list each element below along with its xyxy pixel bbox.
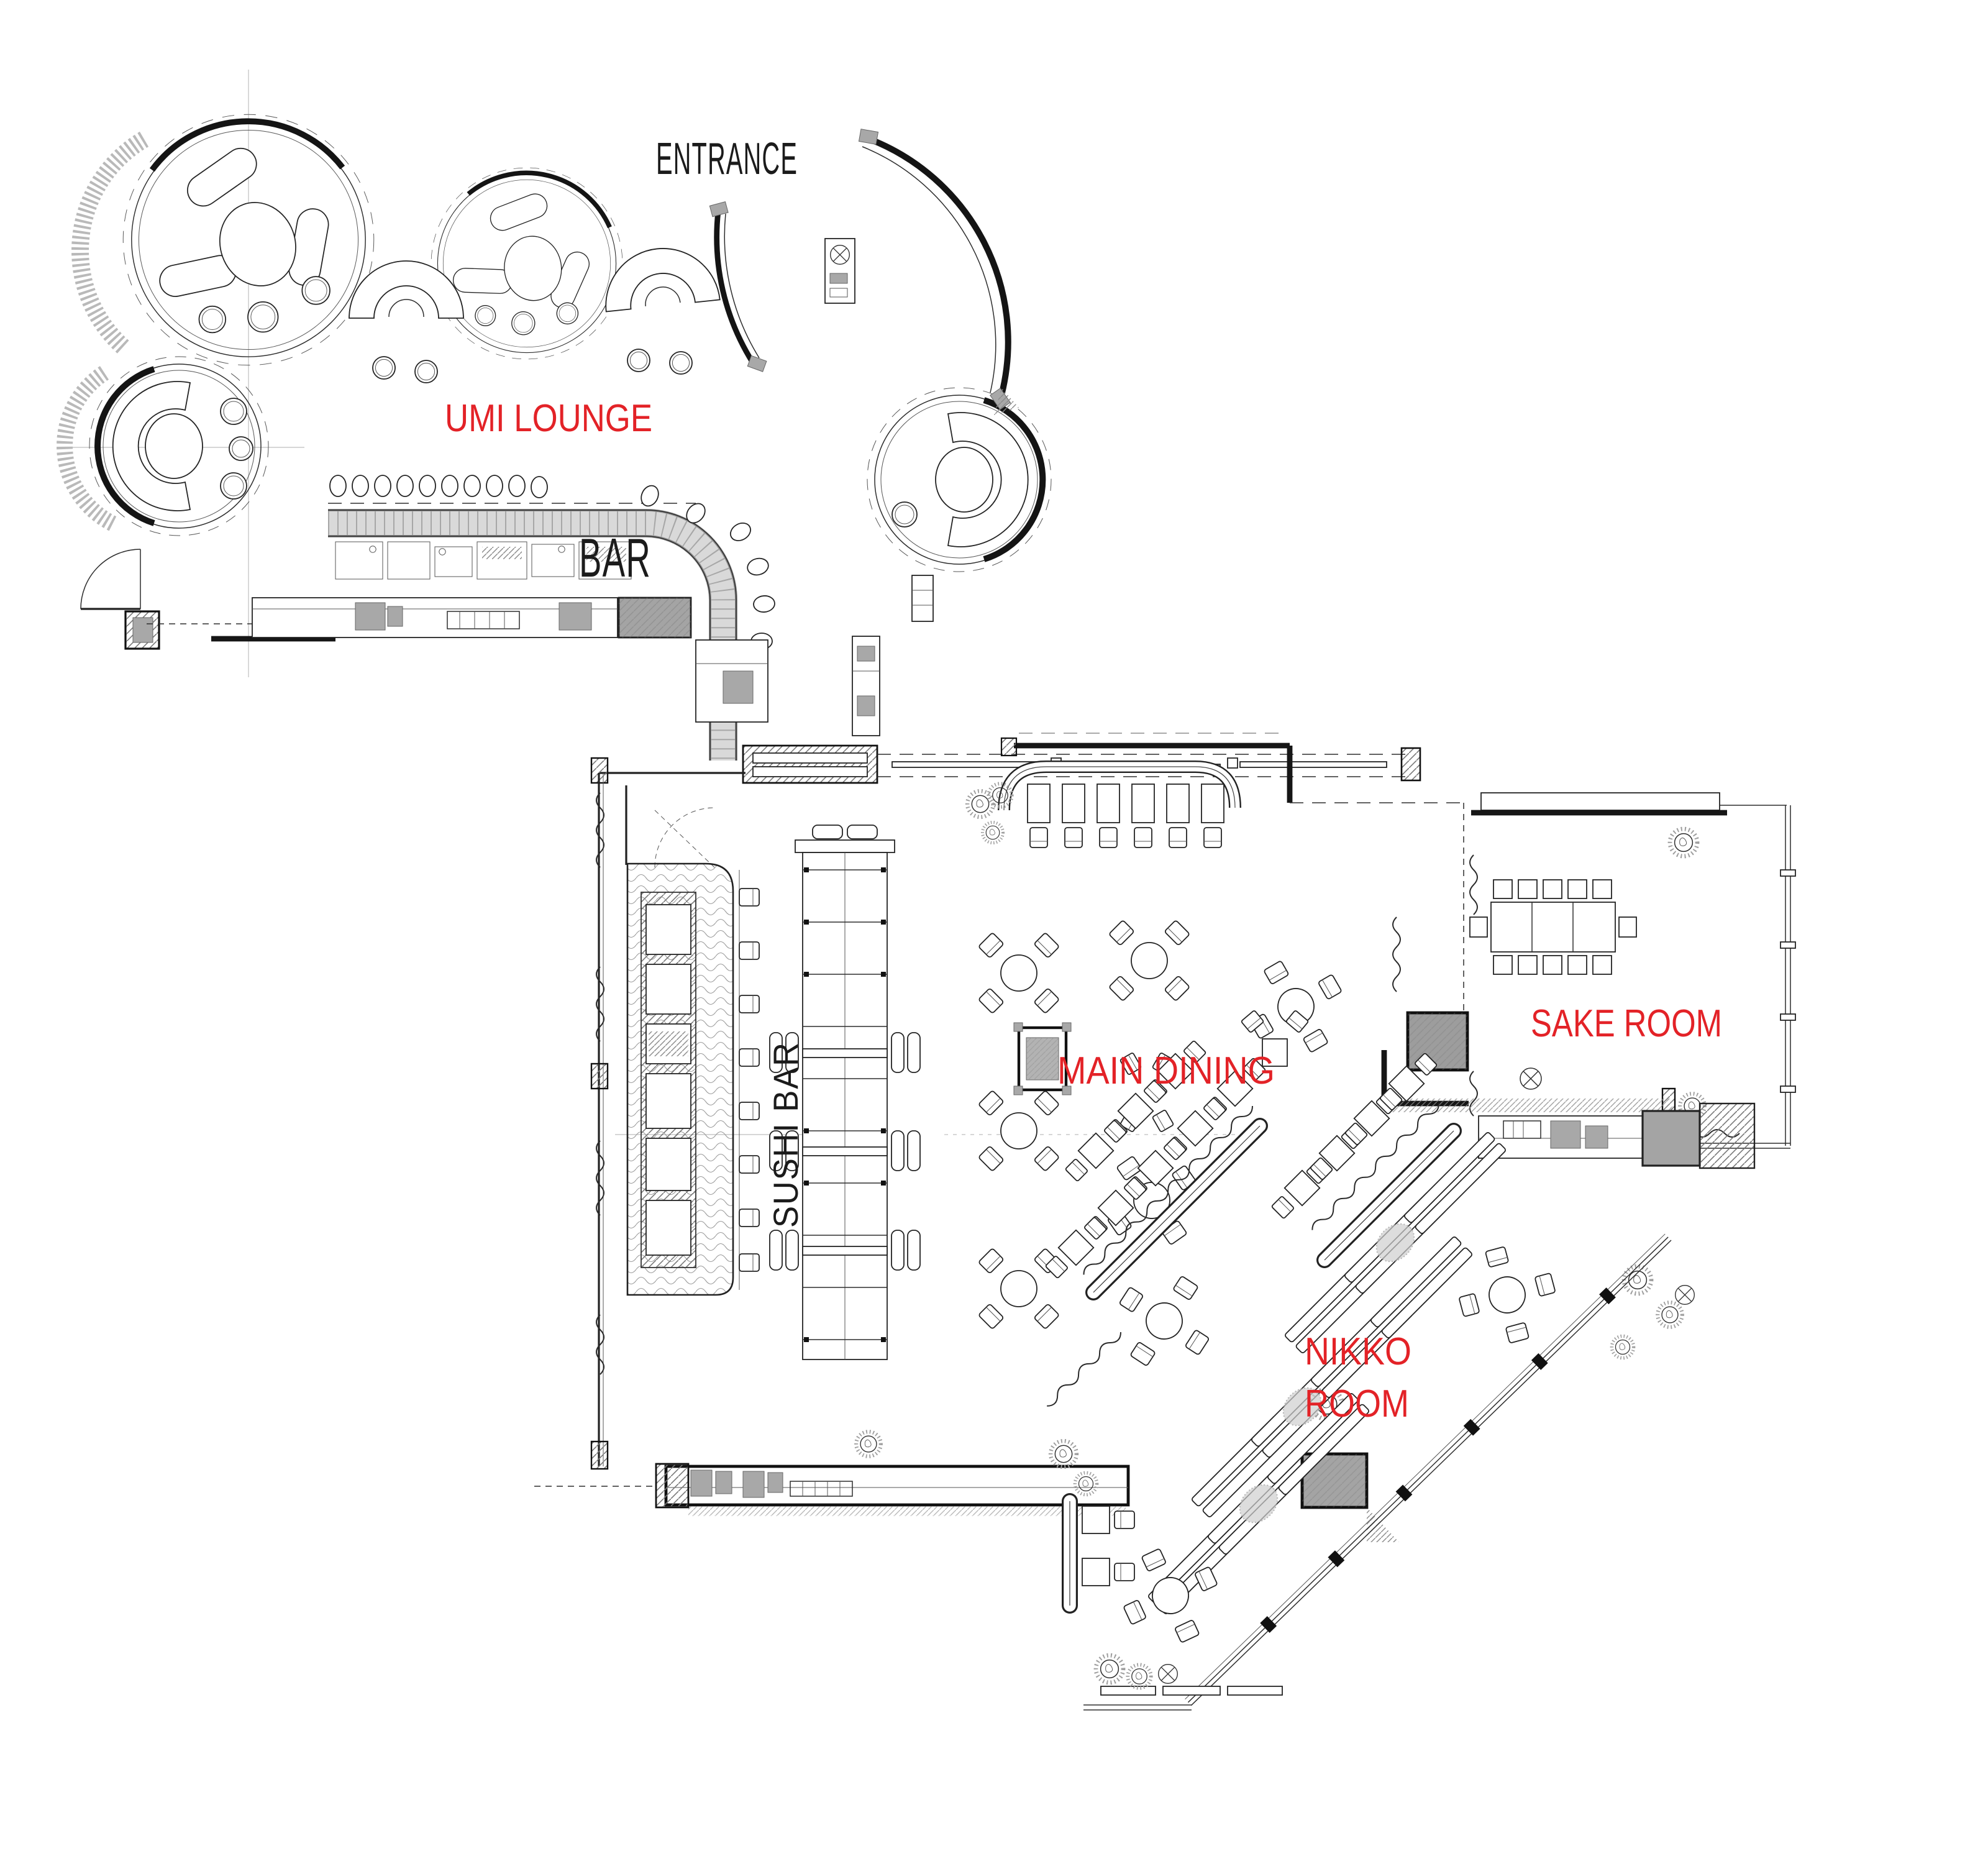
sushi-bar-label: SUSHI BAR [766, 1041, 805, 1228]
circular-booth-pod [89, 357, 268, 536]
service-block [1643, 1111, 1700, 1166]
south-service-counter [534, 1432, 1128, 1516]
service-stand [912, 575, 933, 621]
booth-banquette [1070, 1501, 1134, 1606]
dining-tables [978, 920, 1346, 1369]
bar-area [252, 475, 880, 761]
nikko-room-label-line1: NIKKO [1305, 1330, 1411, 1373]
entrance-curved-wall [870, 139, 1008, 395]
entrance-curved-wall [717, 211, 753, 363]
umi-lounge-area [65, 114, 1051, 649]
bar-service-counter [696, 640, 768, 722]
banquette-row [1004, 767, 1235, 848]
circular-booth-pod [867, 388, 1051, 572]
sake-window-wall [1781, 805, 1795, 1146]
exterior-wall-hatch [80, 139, 144, 348]
entrance-area [709, 129, 1019, 621]
floor-plan: ENTRANCE BAR SUSHI BAR UMI LOUNGE MAIN D… [0, 0, 1988, 1869]
sushi-chairs [739, 889, 759, 1271]
hibachi-tables [1147, 1131, 1506, 1614]
sake-room-area [1393, 793, 1795, 1148]
umi-lounge-label: UMI LOUNGE [445, 397, 652, 440]
nikko-room-label-line2: ROOM [1305, 1382, 1409, 1425]
bar-counter [328, 523, 723, 761]
main-dining-label: MAIN DINING [1057, 1049, 1275, 1092]
sake-long-table [1470, 880, 1636, 974]
host-stand [825, 239, 855, 303]
bar-island-counter [252, 598, 691, 637]
bar-label: BAR [579, 527, 651, 588]
service-station [852, 636, 880, 736]
banquette-tables [1028, 784, 1224, 848]
sushi-bar-area [626, 785, 759, 1295]
entrance-label: ENTRANCE [656, 134, 798, 184]
door-swing [81, 549, 140, 609]
sake-room-label: SAKE ROOM [1531, 1002, 1722, 1045]
nikko-window-wall [1083, 1232, 1673, 1710]
